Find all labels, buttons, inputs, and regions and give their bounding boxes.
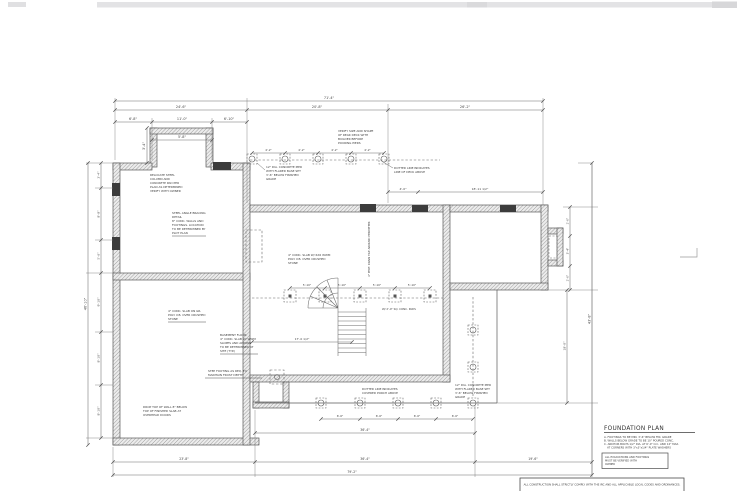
note-line: MAINTAIN FROST DEPTH	[208, 373, 243, 377]
dim-label: 2'-0"	[566, 217, 570, 224]
note-line: SITE (TYP.)	[220, 349, 235, 353]
scan-fold-mark	[680, 248, 697, 257]
scan-artifact-bar	[8, 2, 737, 9]
footer-note: ALL CONSTRUCTION SHALL STRICTLY COMPLY W…	[520, 478, 684, 491]
dim-label: 11'-0"	[177, 117, 188, 121]
note-line: VERIFY WITH OWNER	[150, 189, 181, 193]
footer-note-text: ALL CONSTRUCTION SHALL STRICTLY COMPLY W…	[524, 483, 681, 487]
dim-label: 4'-2"	[265, 148, 272, 152]
note-line: PLOT PLAN	[172, 231, 188, 235]
box-note-line: MUST BE VERIFIED WITH	[605, 459, 637, 463]
title-note-line: AT CORNERS WITH 3"x3"x1/4" PLATE WASHERS	[607, 446, 671, 450]
note-line: GRADE	[455, 395, 465, 399]
foundation-plan-drawing: 71'-4" 24'-6" 20'-8" 26'-2" 6'-8" 11'-0"…	[0, 0, 737, 491]
note-line: W/ 2'-0" SQ. CONC. PADS	[382, 307, 416, 311]
dim-label: 8'-8"	[97, 210, 101, 218]
dim-label: 4'-0"	[399, 187, 407, 191]
dim-label: 8'-10"	[97, 353, 101, 363]
dim-label: 20'-8"	[312, 105, 323, 109]
scan-area: 71'-4" 24'-6" 20'-8" 26'-2" 6'-8" 11'-0"…	[0, 0, 737, 491]
dim-label: 4'-2"	[331, 148, 338, 152]
dim-label: 79'-2"	[347, 470, 357, 474]
dim-label: 8'-10"	[97, 406, 101, 416]
dashed-lines	[246, 160, 473, 398]
box-note-line: ALL EXCAVATIONS AND FOOTINGS	[605, 455, 650, 459]
dim-label: 17'-0 1/2"	[295, 337, 310, 341]
dim-label: 5'-10"	[373, 283, 382, 287]
dim-label: 4'-2"	[364, 148, 371, 152]
dim-label: 2'-0"	[566, 274, 570, 281]
note-line: 4" PERF. DRAIN TILE AROUND PERIMETER	[367, 221, 371, 277]
dim-label: 71'-4"	[324, 96, 335, 100]
dim-label: 5'-10"	[303, 283, 312, 287]
note-line: STONE	[288, 261, 298, 265]
dim-label: 5'-6"	[97, 252, 101, 260]
title-block: FOUNDATION PLAN A. FOOTINGS TO BE MIN. 3…	[602, 426, 695, 469]
note-line: GRADE	[266, 177, 276, 181]
drawing-title: FOUNDATION PLAN	[604, 426, 664, 432]
dim-label: 18'-11 1/2"	[472, 187, 489, 191]
dim-label: 18'-0"	[563, 341, 567, 351]
dim-label: 9'-10"	[97, 297, 101, 307]
dim-label: 6'-6"	[452, 414, 459, 418]
dim-label: 36'-4"	[360, 428, 370, 432]
dim-label: 6'-6"	[337, 414, 344, 418]
dim-label: 5'-10"	[338, 283, 347, 287]
scanned-foundation-plan-page: 71'-4" 24'-6" 20'-8" 26'-2" 6'-8" 11'-0"…	[0, 0, 737, 491]
dim-label: 5'-8"	[178, 135, 186, 139]
dim-label: 5'-10"	[408, 283, 417, 287]
dim-label: 26'-2"	[460, 105, 471, 109]
dim-label: 43'-8"	[588, 313, 592, 324]
note-line: STONE	[168, 317, 178, 321]
note-line: OVERHEAD DOORS	[143, 413, 171, 417]
dim-label: 6'-8"	[129, 117, 137, 121]
interior-column-pads	[284, 290, 436, 302]
dim-label: 3'-4"	[566, 247, 570, 254]
dim-label: 3'-4"	[97, 171, 101, 179]
dim-label: 19'-6"	[528, 457, 538, 461]
box-note-line: OWNER	[605, 462, 615, 466]
dim-label: 24'-6"	[176, 105, 187, 109]
note-line: COVERED PORCH ABOVE	[362, 391, 398, 395]
dim-label: 46'-10"	[84, 297, 88, 310]
dim-label: 6'-10"	[224, 117, 235, 121]
note-line: POURING PIERS	[338, 141, 361, 145]
fireplace-box	[549, 236, 557, 258]
dim-label: 3'-4"	[142, 142, 146, 150]
dim-label: 6'-6"	[376, 414, 383, 418]
dim-label: 36'-4"	[360, 457, 370, 461]
dim-label: 6'-6"	[414, 414, 421, 418]
dim-label: 23'-8"	[179, 457, 189, 461]
note-line: LINE OF DECK ABOVE	[394, 170, 425, 174]
dim-label: 4'-2"	[298, 148, 305, 152]
